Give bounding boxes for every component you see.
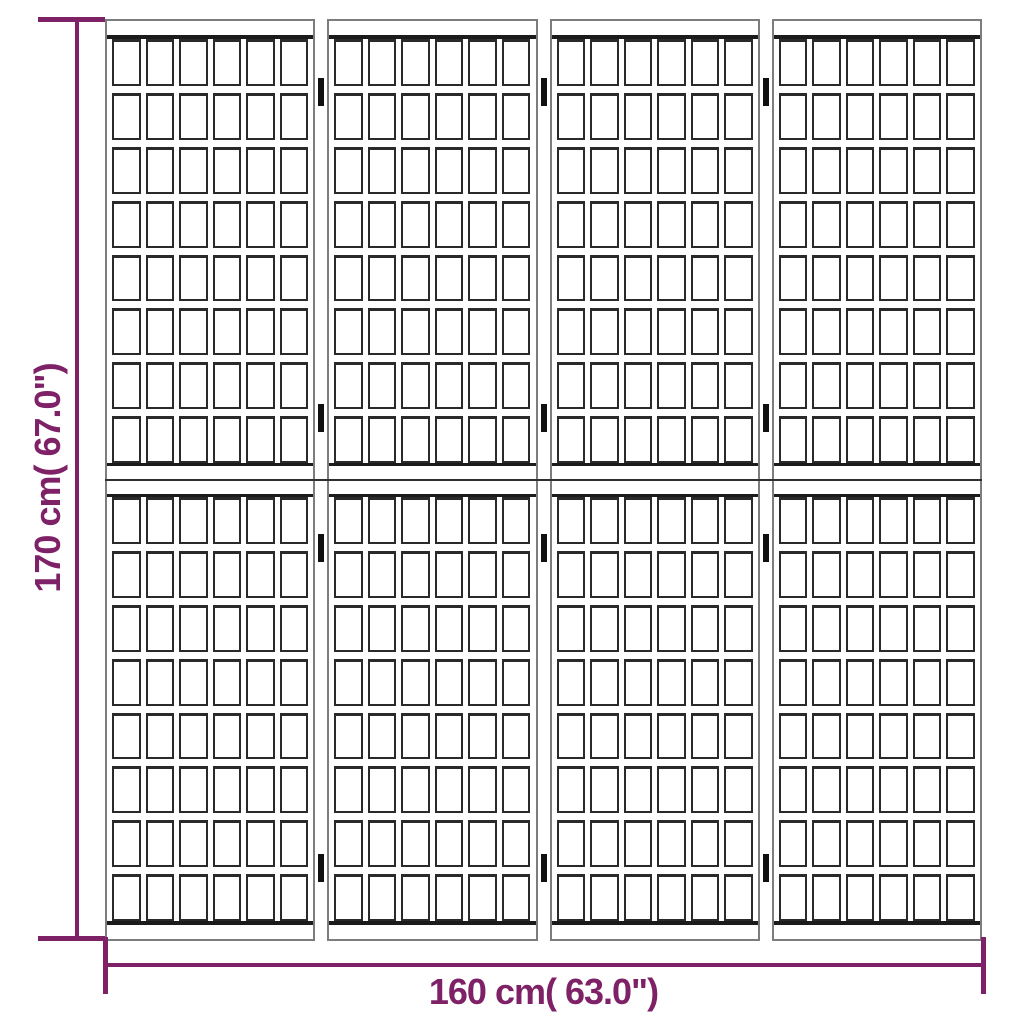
shoji-cell	[246, 820, 275, 867]
panel-middle-seam	[105, 479, 982, 481]
shoji-cell	[246, 255, 275, 302]
shoji-cell	[913, 201, 942, 248]
shoji-cell	[368, 766, 397, 813]
shoji-cell	[724, 497, 753, 544]
panel-lower-half	[329, 480, 535, 939]
shoji-cell	[401, 605, 430, 652]
shoji-cell	[879, 201, 908, 248]
shoji-cell	[779, 362, 808, 409]
shoji-cell	[724, 147, 753, 194]
shoji-cell	[879, 147, 908, 194]
shoji-cell	[913, 713, 942, 760]
shoji-cell	[502, 766, 531, 813]
shoji-cell	[846, 308, 875, 355]
shoji-cell	[724, 93, 753, 140]
shoji-cell	[280, 713, 309, 760]
shoji-cell	[879, 766, 908, 813]
shoji-cell	[146, 605, 175, 652]
shoji-cell	[624, 820, 653, 867]
shoji-cell	[246, 308, 275, 355]
shoji-cell	[368, 874, 397, 921]
shoji-cell	[435, 551, 464, 598]
panel-mid-band	[552, 480, 758, 494]
shoji-cell	[179, 147, 208, 194]
shoji-cell	[112, 362, 141, 409]
shoji-cell	[280, 308, 309, 355]
panel-upper-half	[329, 21, 535, 480]
shoji-cell	[846, 766, 875, 813]
shoji-cell	[879, 874, 908, 921]
shoji-cell	[468, 820, 497, 867]
shoji-cell	[779, 713, 808, 760]
shoji-cell	[146, 874, 175, 921]
shoji-cell	[779, 497, 808, 544]
shoji-cell	[246, 874, 275, 921]
shoji-cell	[112, 416, 141, 463]
shoji-cell	[146, 147, 175, 194]
shoji-cell	[435, 308, 464, 355]
shoji-cell	[691, 255, 720, 302]
shoji-cell	[724, 416, 753, 463]
shoji-cell	[179, 605, 208, 652]
shoji-cell	[846, 497, 875, 544]
shoji-cell	[435, 39, 464, 86]
shoji-cell	[502, 362, 531, 409]
shoji-cell	[946, 659, 975, 706]
panel-mid-band	[774, 466, 980, 480]
shoji-cell	[779, 659, 808, 706]
shoji-cell	[624, 497, 653, 544]
folding-room-divider	[105, 19, 982, 941]
shoji-cell	[946, 201, 975, 248]
shoji-cell	[502, 39, 531, 86]
shoji-cell	[334, 874, 363, 921]
shoji-cell	[401, 416, 430, 463]
shoji-cell	[691, 659, 720, 706]
shoji-cell	[657, 874, 686, 921]
shoji-cell	[624, 659, 653, 706]
shoji-cell	[590, 766, 619, 813]
shoji-cell	[879, 605, 908, 652]
shoji-cell	[691, 713, 720, 760]
shoji-cell	[280, 659, 309, 706]
shoji-cell	[812, 308, 841, 355]
shoji-cell	[846, 820, 875, 867]
shoji-cell	[334, 93, 363, 140]
panel-upper-half	[774, 21, 980, 480]
shoji-cell	[812, 874, 841, 921]
shoji-cell	[557, 255, 586, 302]
shoji-cell	[691, 820, 720, 867]
shoji-cell	[724, 308, 753, 355]
shoji-cell	[812, 605, 841, 652]
shoji-cell	[280, 201, 309, 248]
shoji-cell	[146, 201, 175, 248]
shoji-cell	[112, 874, 141, 921]
shoji-cell	[946, 874, 975, 921]
shoji-cell	[624, 416, 653, 463]
shoji-cell	[557, 39, 586, 86]
shoji-cell	[846, 362, 875, 409]
panel-rail-band	[552, 21, 758, 39]
shoji-cell	[624, 551, 653, 598]
shoji-cell	[112, 766, 141, 813]
shoji-cell	[946, 497, 975, 544]
shoji-cell	[691, 874, 720, 921]
shoji-cell	[779, 201, 808, 248]
shoji-cell	[657, 659, 686, 706]
shoji-cell	[779, 820, 808, 867]
shoji-cell	[368, 713, 397, 760]
shoji-cell	[557, 201, 586, 248]
shoji-cell	[779, 39, 808, 86]
shoji-cell	[812, 39, 841, 86]
shoji-cell	[468, 659, 497, 706]
shoji-cell	[468, 362, 497, 409]
shoji-cell	[246, 147, 275, 194]
shoji-cell	[502, 308, 531, 355]
shoji-cell	[502, 93, 531, 140]
shoji-cell	[812, 93, 841, 140]
shoji-cell	[401, 93, 430, 140]
shoji-cell	[624, 147, 653, 194]
hinge	[763, 854, 769, 882]
shoji-cell	[368, 497, 397, 544]
shoji-cell	[368, 255, 397, 302]
shoji-cell	[246, 551, 275, 598]
shoji-cell	[657, 766, 686, 813]
shoji-cell	[724, 551, 753, 598]
shoji-cell	[846, 874, 875, 921]
shoji-cell	[401, 551, 430, 598]
shoji-cell	[913, 308, 942, 355]
shoji-cell	[334, 497, 363, 544]
shoji-cell	[502, 147, 531, 194]
shoji-cell	[812, 551, 841, 598]
shoji-cell	[724, 201, 753, 248]
shoji-cell	[280, 147, 309, 194]
panel-rail-band	[552, 921, 758, 939]
shoji-cell	[557, 713, 586, 760]
shoji-cell	[502, 551, 531, 598]
product-dimension-diagram: 170 cm( 67.0") 160 cm( 63.0")	[0, 0, 1024, 1024]
shoji-cell	[280, 874, 309, 921]
shoji-cell	[280, 93, 309, 140]
hinge	[318, 404, 324, 432]
shoji-cell	[435, 713, 464, 760]
shoji-cell	[691, 605, 720, 652]
shoji-cell	[146, 39, 175, 86]
shoji-cell	[913, 820, 942, 867]
shoji-cell	[213, 497, 242, 544]
shoji-cell	[657, 308, 686, 355]
panel-mid-band	[329, 466, 535, 480]
shoji-cell	[368, 93, 397, 140]
shoji-cell	[779, 93, 808, 140]
shoji-cell	[846, 39, 875, 86]
shoji-cell	[779, 551, 808, 598]
panel-lower-half	[774, 480, 980, 939]
shoji-cell	[334, 362, 363, 409]
shoji-cell	[946, 147, 975, 194]
shoji-cell	[468, 416, 497, 463]
shoji-cell	[468, 497, 497, 544]
shoji-cell	[590, 362, 619, 409]
shoji-cell	[112, 39, 141, 86]
shoji-cell	[557, 147, 586, 194]
shoji-cell	[468, 551, 497, 598]
shoji-cell	[657, 416, 686, 463]
hinge	[541, 404, 547, 432]
shoji-cell	[946, 766, 975, 813]
shoji-cell	[334, 551, 363, 598]
shoji-cell	[657, 147, 686, 194]
shoji-cell	[468, 39, 497, 86]
shoji-cell	[590, 551, 619, 598]
shoji-cell	[590, 416, 619, 463]
shoji-cell	[624, 874, 653, 921]
shoji-cell	[112, 147, 141, 194]
panel-mid-band	[774, 480, 980, 494]
shoji-cell	[779, 147, 808, 194]
panel-upper-half	[107, 21, 313, 480]
hinge	[318, 854, 324, 882]
shoji-cell	[368, 416, 397, 463]
shoji-cell	[468, 255, 497, 302]
shoji-cell	[334, 766, 363, 813]
shoji-cell	[502, 605, 531, 652]
shoji-cell	[590, 659, 619, 706]
shoji-cell	[624, 605, 653, 652]
shoji-cell	[846, 551, 875, 598]
shoji-cell	[213, 605, 242, 652]
shoji-grid	[107, 39, 313, 466]
panel-mid-band	[329, 480, 535, 494]
shoji-cell	[468, 605, 497, 652]
shoji-cell	[368, 551, 397, 598]
shoji-cell	[502, 713, 531, 760]
shoji-cell	[502, 497, 531, 544]
shoji-cell	[812, 659, 841, 706]
shoji-cell	[590, 497, 619, 544]
shoji-cell	[724, 766, 753, 813]
shoji-cell	[435, 362, 464, 409]
shoji-cell	[657, 201, 686, 248]
shoji-cell	[590, 39, 619, 86]
shoji-cell	[179, 874, 208, 921]
shoji-cell	[879, 39, 908, 86]
shoji-cell	[213, 659, 242, 706]
width-dimension-label: 160 cm( 63.0")	[105, 971, 982, 1013]
shoji-cell	[946, 39, 975, 86]
shoji-grid	[329, 39, 535, 466]
shoji-cell	[112, 93, 141, 140]
shoji-cell	[435, 605, 464, 652]
shoji-cell	[624, 362, 653, 409]
shoji-cell	[590, 874, 619, 921]
panel-upper-half	[552, 21, 758, 480]
shoji-cell	[913, 362, 942, 409]
panel-rail-band	[774, 921, 980, 939]
hinge	[763, 78, 769, 106]
shoji-cell	[946, 605, 975, 652]
shoji-cell	[401, 497, 430, 544]
shoji-cell	[624, 766, 653, 813]
shoji-cell	[179, 416, 208, 463]
shoji-cell	[879, 255, 908, 302]
shoji-cell	[557, 362, 586, 409]
shoji-cell	[179, 93, 208, 140]
shoji-cell	[691, 308, 720, 355]
shoji-cell	[557, 551, 586, 598]
shoji-cell	[779, 605, 808, 652]
shoji-cell	[179, 659, 208, 706]
shoji-cell	[334, 201, 363, 248]
shoji-cell	[179, 255, 208, 302]
shoji-cell	[179, 308, 208, 355]
shoji-cell	[179, 766, 208, 813]
shoji-cell	[557, 497, 586, 544]
shoji-cell	[724, 605, 753, 652]
shoji-cell	[213, 39, 242, 86]
shoji-cell	[779, 416, 808, 463]
shoji-cell	[213, 147, 242, 194]
shoji-cell	[946, 255, 975, 302]
shoji-cell	[401, 874, 430, 921]
shoji-cell	[913, 605, 942, 652]
shoji-cell	[846, 93, 875, 140]
shoji-cell	[280, 551, 309, 598]
shoji-cell	[179, 362, 208, 409]
shoji-cell	[913, 39, 942, 86]
shoji-cell	[657, 605, 686, 652]
shoji-cell	[435, 874, 464, 921]
shoji-cell	[691, 201, 720, 248]
shoji-cell	[112, 820, 141, 867]
shoji-cell	[246, 201, 275, 248]
shoji-cell	[435, 820, 464, 867]
shoji-cell	[213, 201, 242, 248]
shoji-cell	[502, 255, 531, 302]
shoji-cell	[246, 93, 275, 140]
shoji-cell	[468, 147, 497, 194]
shoji-cell	[846, 201, 875, 248]
shoji-cell	[401, 39, 430, 86]
shoji-cell	[657, 39, 686, 86]
shoji-cell	[401, 766, 430, 813]
shoji-cell	[846, 416, 875, 463]
shoji-cell	[812, 713, 841, 760]
shoji-cell	[435, 416, 464, 463]
shoji-cell	[368, 308, 397, 355]
panel-rail-band	[107, 21, 313, 39]
shoji-cell	[724, 362, 753, 409]
shoji-cell	[879, 659, 908, 706]
shoji-cell	[280, 362, 309, 409]
shoji-cell	[557, 605, 586, 652]
shoji-cell	[812, 362, 841, 409]
shoji-cell	[812, 820, 841, 867]
shoji-cell	[657, 362, 686, 409]
shoji-cell	[146, 255, 175, 302]
hinge	[541, 854, 547, 882]
shoji-cell	[657, 820, 686, 867]
shoji-cell	[590, 713, 619, 760]
shoji-cell	[246, 416, 275, 463]
shoji-cell	[879, 416, 908, 463]
shoji-cell	[246, 766, 275, 813]
shoji-cell	[691, 362, 720, 409]
shoji-cell	[334, 416, 363, 463]
shoji-cell	[213, 874, 242, 921]
shoji-cell	[879, 362, 908, 409]
shoji-cell	[368, 147, 397, 194]
shoji-cell	[401, 820, 430, 867]
shoji-cell	[112, 201, 141, 248]
shoji-cell	[724, 713, 753, 760]
shoji-cell	[468, 874, 497, 921]
shoji-cell	[334, 820, 363, 867]
hinge	[541, 534, 547, 562]
shoji-cell	[280, 605, 309, 652]
shoji-cell	[401, 201, 430, 248]
shoji-cell	[213, 416, 242, 463]
shoji-cell	[246, 362, 275, 409]
shoji-cell	[624, 255, 653, 302]
shoji-cell	[334, 659, 363, 706]
shoji-cell	[691, 497, 720, 544]
shoji-cell	[779, 874, 808, 921]
hinge	[763, 404, 769, 432]
shoji-cell	[334, 39, 363, 86]
shoji-cell	[913, 147, 942, 194]
shoji-cell	[812, 766, 841, 813]
shoji-cell	[468, 766, 497, 813]
shoji-cell	[146, 93, 175, 140]
shoji-cell	[590, 201, 619, 248]
height-dimension-top-cap	[38, 17, 105, 22]
shoji-cell	[657, 713, 686, 760]
shoji-cell	[624, 93, 653, 140]
shoji-cell	[401, 362, 430, 409]
shoji-cell	[146, 308, 175, 355]
shoji-cell	[435, 766, 464, 813]
panel-rail-band	[329, 921, 535, 939]
shoji-cell	[146, 713, 175, 760]
shoji-cell	[146, 362, 175, 409]
shoji-cell	[913, 766, 942, 813]
shoji-cell	[946, 308, 975, 355]
shoji-cell	[879, 93, 908, 140]
shoji-cell	[913, 93, 942, 140]
shoji-cell	[112, 713, 141, 760]
shoji-cell	[213, 362, 242, 409]
shoji-cell	[812, 416, 841, 463]
shoji-cell	[334, 605, 363, 652]
shoji-cell	[368, 201, 397, 248]
shoji-cell	[401, 308, 430, 355]
shoji-cell	[401, 659, 430, 706]
shoji-cell	[146, 551, 175, 598]
shoji-cell	[401, 255, 430, 302]
shoji-cell	[590, 93, 619, 140]
shoji-cell	[812, 255, 841, 302]
shoji-cell	[846, 659, 875, 706]
panel-rail-band	[329, 21, 535, 39]
shoji-cell	[846, 605, 875, 652]
shoji-cell	[213, 820, 242, 867]
panel-rail-band	[774, 21, 980, 39]
